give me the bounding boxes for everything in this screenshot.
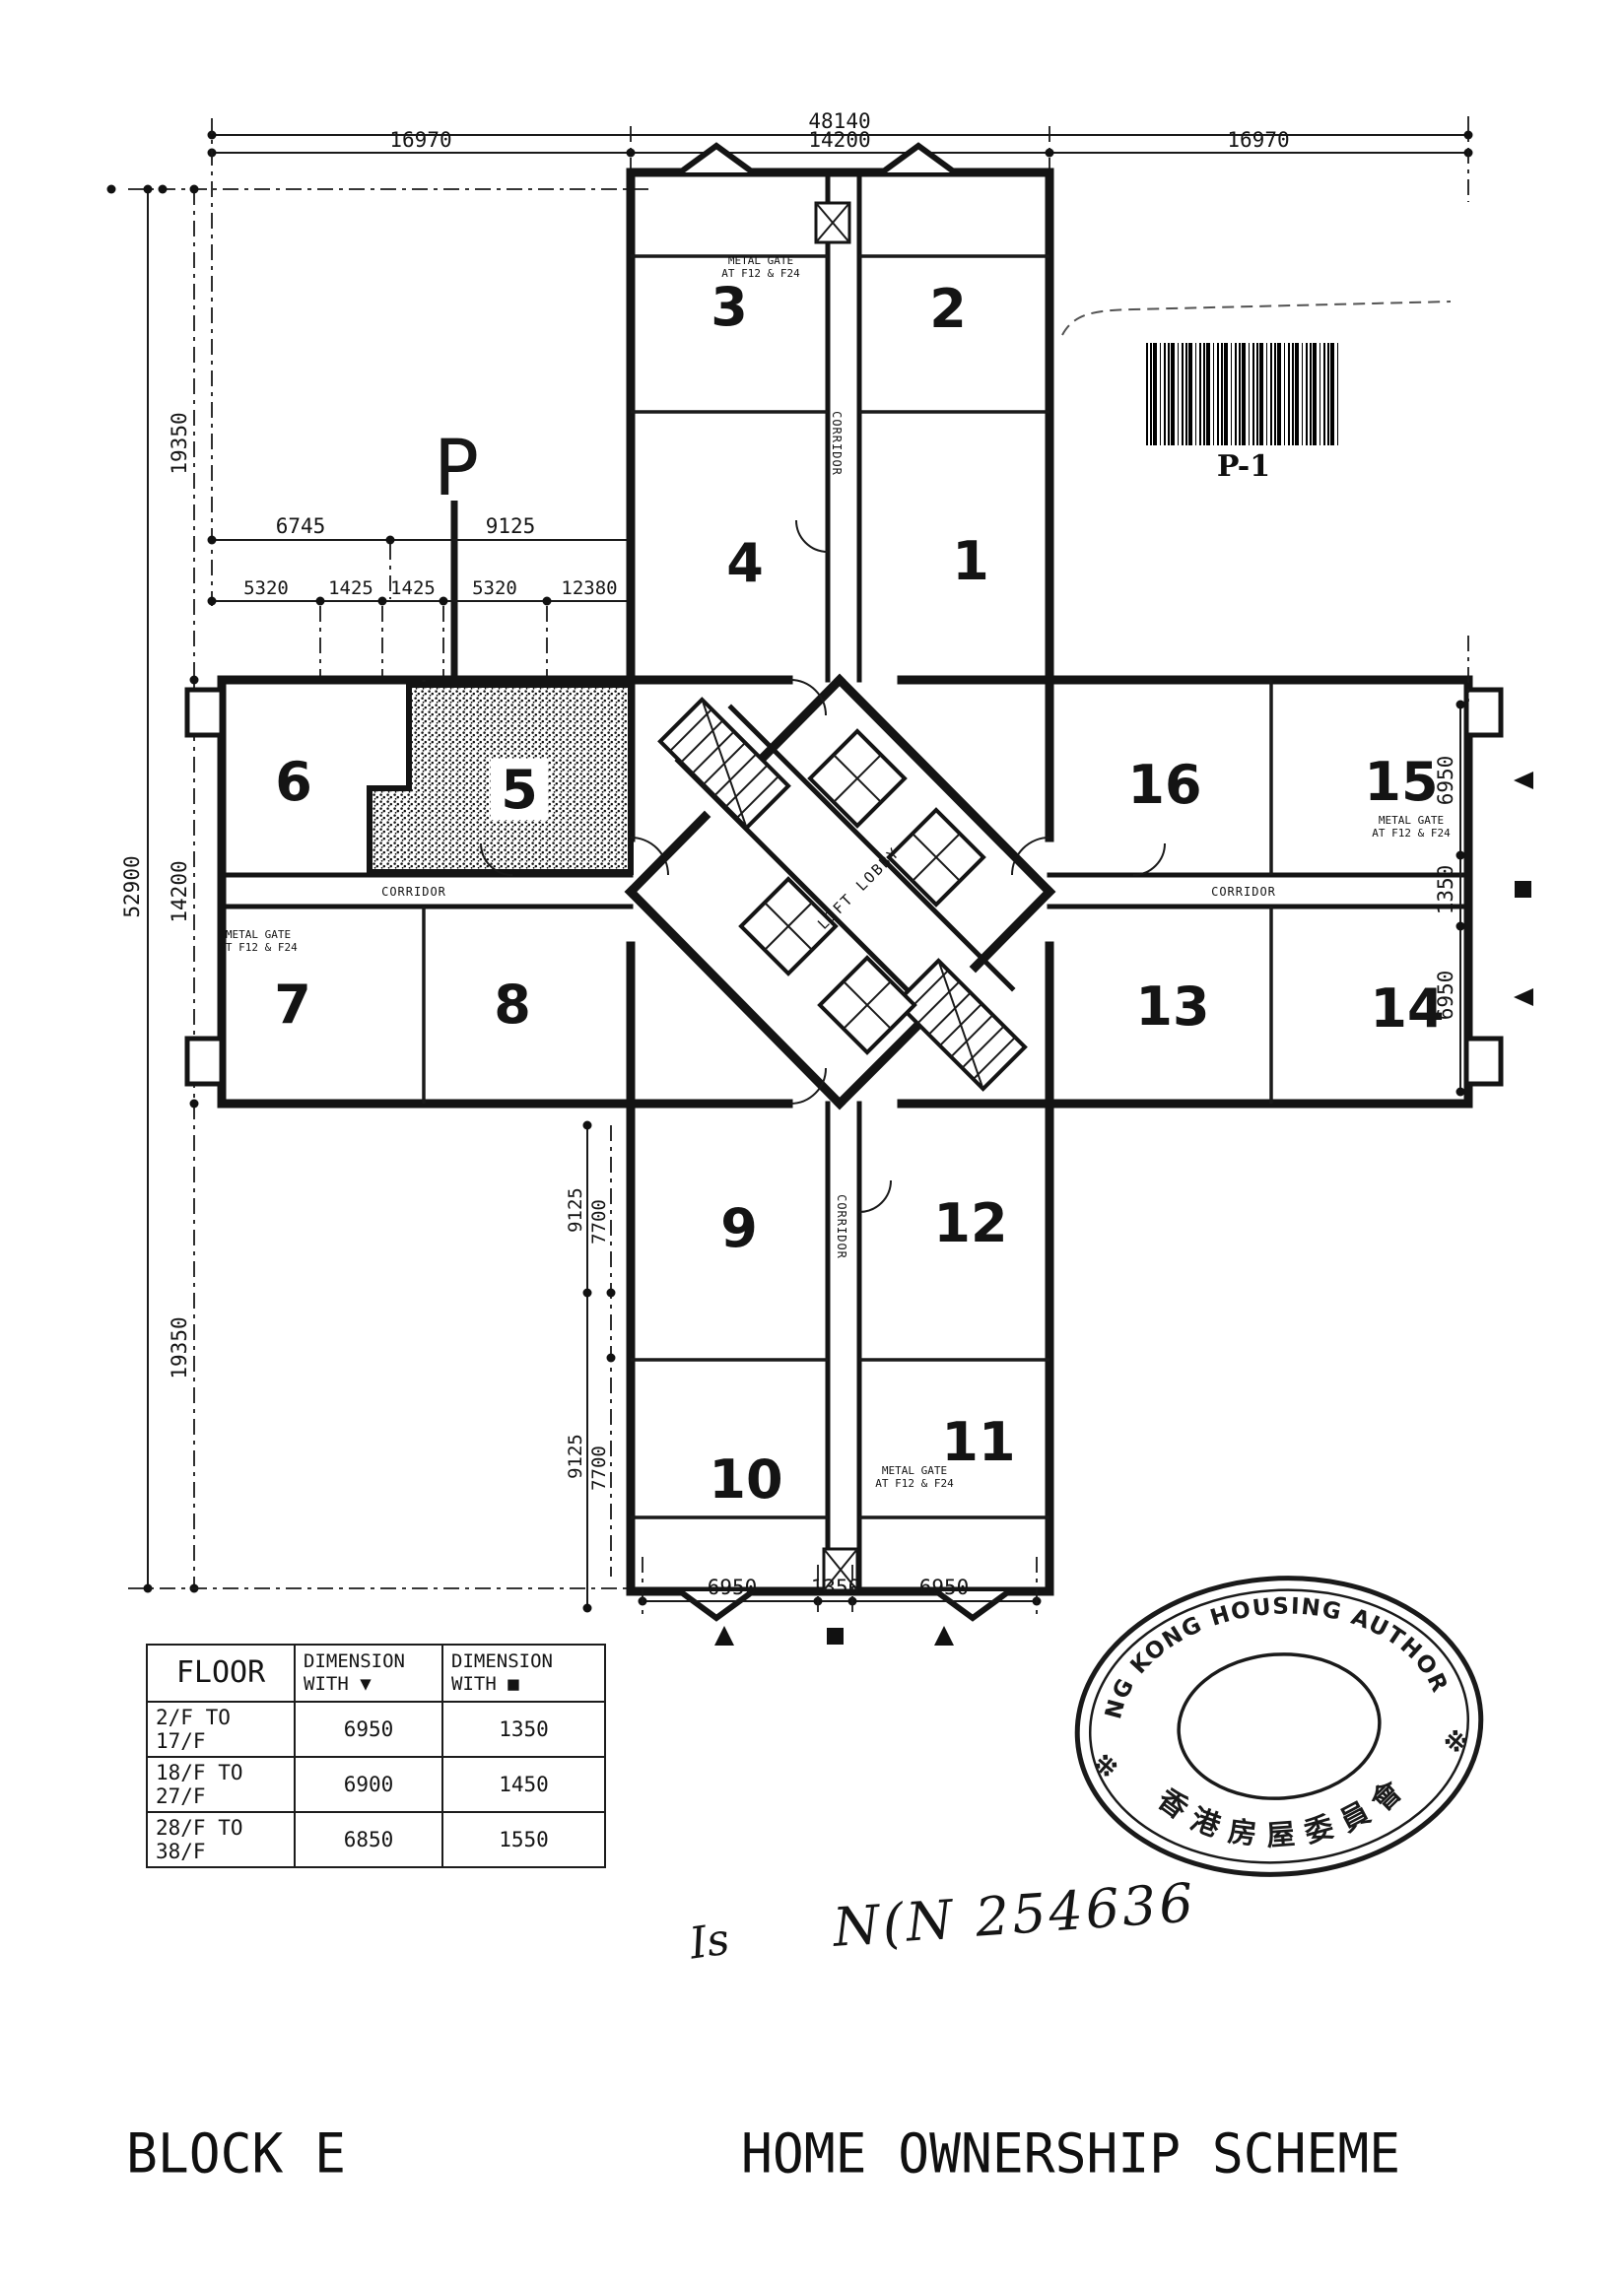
- unit-label-16: 16: [1127, 754, 1201, 816]
- table-cell-dim: 1350: [442, 1702, 605, 1757]
- block-title: BLOCK E 2 ND TO 18 TH AND 20 TH TO 28 TH…: [126, 2008, 660, 2287]
- west-wing: 5 6 7 8 CORRIDOR METAL GATE AT F12 & F24: [187, 680, 668, 1104]
- lift-shaft: [889, 810, 983, 905]
- dim-south-upper-a: 9125: [565, 1187, 586, 1233]
- central-core: LIFT LOBBY: [631, 680, 1049, 1104]
- unit-label-8: 8: [494, 974, 531, 1036]
- dim-south-lower-a: 9125: [565, 1434, 586, 1479]
- south-wing-dimension-lines: 9125 7700 9125 7700: [565, 1121, 616, 1613]
- unit-label-13: 13: [1135, 975, 1209, 1038]
- corridor-label-east: CORRIDOR: [1211, 885, 1276, 899]
- dim-sub-4: 5320: [472, 577, 517, 599]
- unit-label-6: 6: [275, 751, 312, 813]
- floor-plan-drawing: 48140 16970 14200 16970 52900 19350 1420…: [0, 0, 1624, 2287]
- dim-bottom-right: 6950: [919, 1576, 970, 1599]
- table-header-dim-square: DIMENSION WITH ■: [442, 1645, 605, 1702]
- unit-label-12: 12: [933, 1192, 1007, 1254]
- stamp-star-right: ※: [1443, 1728, 1469, 1760]
- metal-gate-note-south-line1: METAL GATE: [882, 1464, 947, 1477]
- marker-left-triangle: [1514, 988, 1533, 1006]
- marker-left-triangle: [1514, 772, 1533, 789]
- marker-up-triangle: [934, 1626, 954, 1646]
- table-cell-dim: 6850: [295, 1812, 442, 1867]
- dim-right-middle: 1350: [1434, 865, 1457, 915]
- table-cell-dim: 6900: [295, 1757, 442, 1812]
- metal-gate-note-east-line2: AT F12 & F24: [1372, 827, 1451, 840]
- dim-sub-3: 1425: [390, 577, 436, 599]
- metal-gate-note-east-line1: METAL GATE: [1379, 814, 1444, 827]
- table-cell-dim: 1550: [442, 1812, 605, 1867]
- reference-curve: [1062, 302, 1451, 335]
- south-wing: 9 12 10 11 CORRIDOR METAL GATE AT F12 & …: [631, 1104, 1049, 1618]
- stamp-arc-bottom-text: 香港房屋委員會: [1150, 1765, 1421, 1860]
- north-wing: 3 2 4 1 CORRIDOR METAL GATE AT F12 & F24: [631, 146, 1049, 680]
- dim-right-top: 6950: [1434, 756, 1457, 806]
- unit-label-10: 10: [709, 1448, 782, 1511]
- scheme-title: HOME OWNERSHIP SCHEME YU TUNG COURT TUNG…: [741, 2008, 1526, 2287]
- table-header-floor: FLOOR: [147, 1645, 295, 1702]
- dim-sub-1: 5320: [243, 577, 289, 599]
- dim-left-middle: 14200: [168, 860, 191, 922]
- stamp-star-left: ※: [1093, 1752, 1119, 1783]
- unit-label-2: 2: [929, 278, 967, 340]
- scheme-title-line1: HOME OWNERSHIP SCHEME: [741, 2124, 1526, 2183]
- p-marker-group: P 6745 9125 5320 1425 1425 5320 12380: [208, 425, 636, 678]
- table-cell-dim: 1450: [442, 1757, 605, 1812]
- barcode: [1146, 343, 1341, 445]
- dim-bottom-middle: 1350: [811, 1576, 861, 1599]
- metal-gate-note-north-line1: METAL GATE: [728, 254, 793, 267]
- table-header-row: FLOOR DIMENSION WITH ▼ DIMENSION WITH ■: [147, 1645, 605, 1702]
- left-dimension-lines: 52900 19350 14200 19350: [120, 185, 641, 1593]
- dim-left-bottom: 19350: [168, 1316, 191, 1379]
- marker-square: [1515, 881, 1531, 898]
- unit-label-9: 9: [720, 1197, 758, 1259]
- dim-sub-2: 1425: [328, 577, 373, 599]
- dim-top-left: 16970: [389, 128, 451, 152]
- unit-label-15: 15: [1364, 751, 1438, 813]
- dim-p-left: 6745: [276, 514, 326, 538]
- dim-p-right: 9125: [486, 514, 536, 538]
- corridor-label-west: CORRIDOR: [381, 885, 446, 899]
- marker-square: [827, 1628, 844, 1645]
- p-marker-label: P: [434, 425, 480, 513]
- metal-gate-note-north-line2: AT F12 & F24: [721, 267, 800, 280]
- table-row: 28/F TO 38/F 6850 1550: [147, 1812, 605, 1867]
- dim-left-top: 19350: [168, 412, 191, 474]
- metal-gate-note-south-line2: AT F12 & F24: [875, 1477, 954, 1490]
- table-row: 18/F TO 27/F 6900 1450: [147, 1757, 605, 1812]
- lift-shaft: [810, 731, 905, 826]
- table-cell-floor-range: 28/F TO 38/F: [147, 1812, 295, 1867]
- unit-label-3: 3: [710, 276, 748, 338]
- floor-dimension-table: FLOOR DIMENSION WITH ▼ DIMENSION WITH ■ …: [146, 1644, 606, 1868]
- dim-south-lower-b: 7700: [588, 1446, 610, 1491]
- marker-up-triangle: [714, 1626, 734, 1646]
- floor-plan-sheet: 48140 16970 14200 16970 52900 19350 1420…: [0, 0, 1624, 2287]
- east-wing: 16 15 13 14 CORRIDOR METAL GATE AT F12 &…: [1012, 680, 1501, 1104]
- lift-lobby-label: LIFT LOBBY: [814, 843, 904, 933]
- unit-label-7: 7: [274, 974, 311, 1036]
- dim-sub-5: 12380: [561, 577, 617, 599]
- dim-bottom-left: 6950: [708, 1576, 758, 1599]
- dim-top-right: 16970: [1227, 128, 1289, 152]
- unit-label-5: 5: [501, 759, 538, 821]
- metal-gate-note-west-line2: AT F12 & F24: [219, 941, 298, 954]
- housing-authority-stamp: HONG KONG HOUSING AUTHORITY 香港房屋委員會 ※ ※: [1067, 1565, 1491, 1888]
- unit-label-1: 1: [952, 530, 989, 592]
- corridor-label-south: CORRIDOR: [835, 1194, 848, 1259]
- table-cell-floor-range: 2/F TO 17/F: [147, 1702, 295, 1757]
- dim-left-overall: 52900: [120, 855, 144, 917]
- table-header-dim-triangle: DIMENSION WITH ▼: [295, 1645, 442, 1702]
- block-title-line1: BLOCK E: [126, 2124, 660, 2183]
- barcode-label: P-1: [1146, 449, 1341, 484]
- table-cell-dim: 6950: [295, 1702, 442, 1757]
- dim-right-bottom: 6950: [1434, 971, 1457, 1021]
- unit-label-4: 4: [726, 532, 764, 594]
- corridor-label-north: CORRIDOR: [830, 411, 844, 476]
- metal-gate-note-west-line1: METAL GATE: [226, 928, 291, 941]
- table-cell-floor-range: 18/F TO 27/F: [147, 1757, 295, 1812]
- table-row: 2/F TO 17/F 6950 1350: [147, 1702, 605, 1757]
- handwriting-prefix: Is: [687, 1914, 733, 1969]
- unit-label-11: 11: [941, 1411, 1015, 1473]
- dim-top-middle: 14200: [808, 128, 870, 152]
- dim-south-upper-b: 7700: [588, 1199, 610, 1244]
